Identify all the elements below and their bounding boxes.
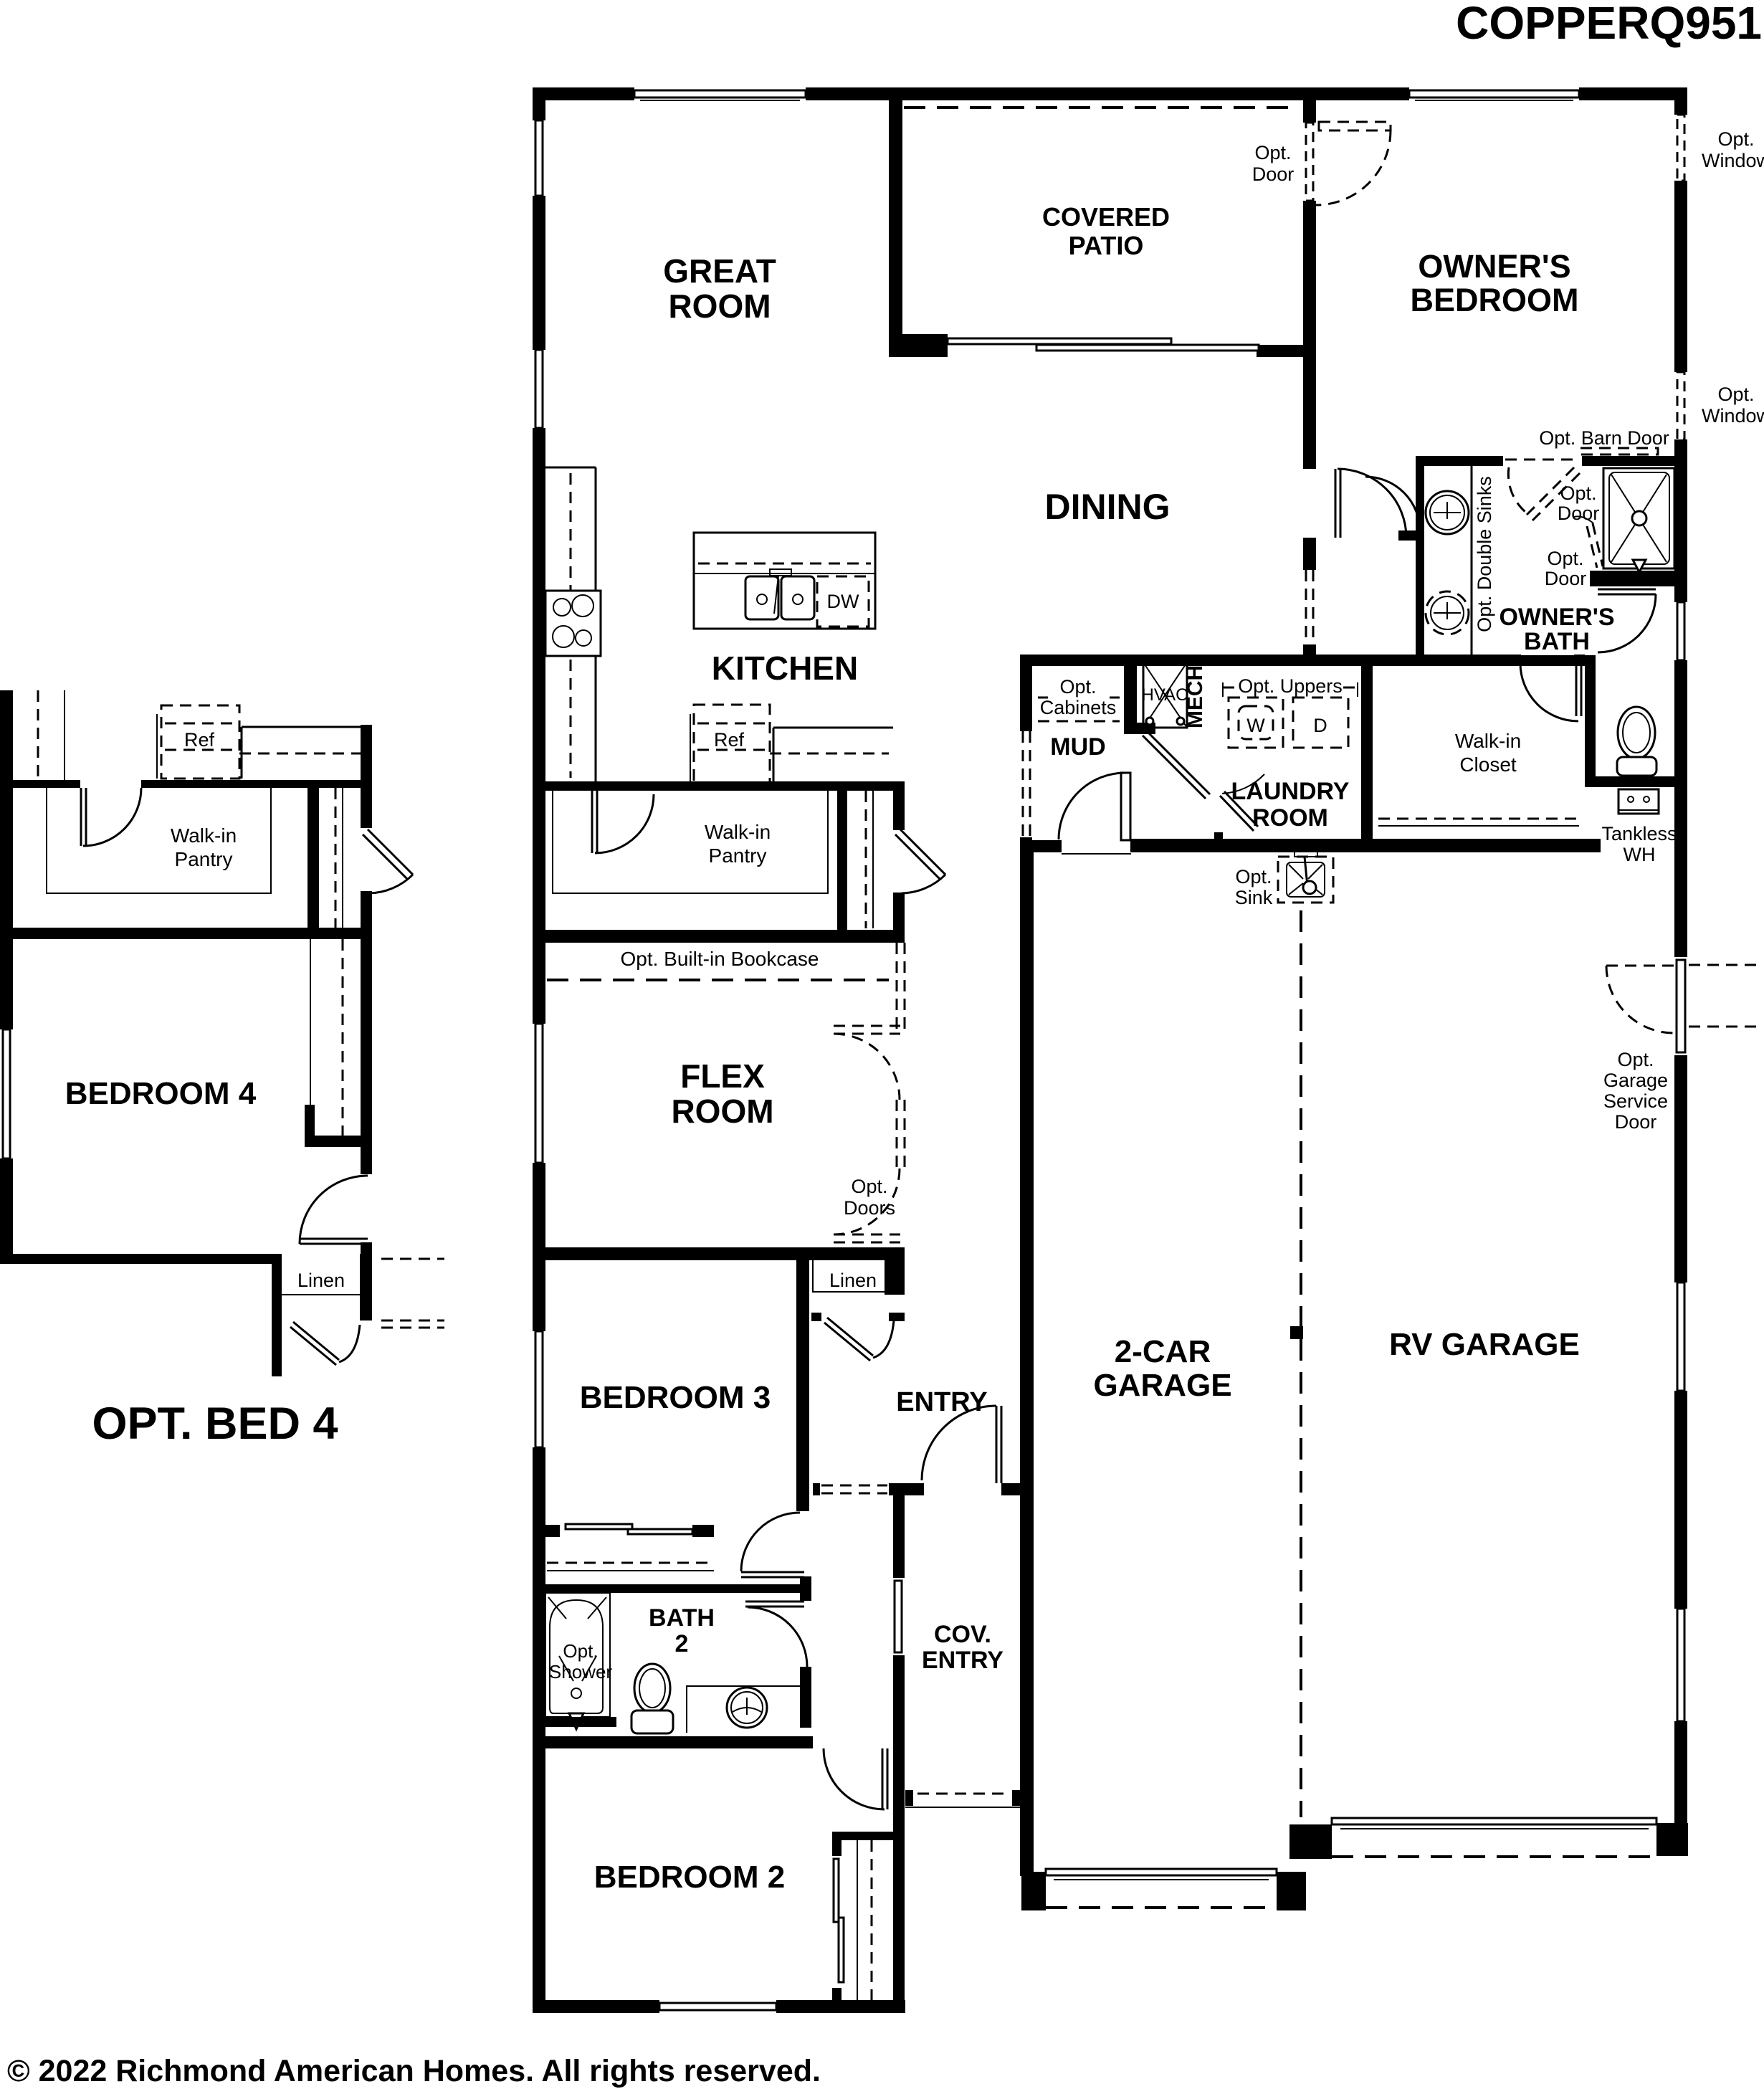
svg-text:WH: WH xyxy=(1624,844,1656,865)
svg-text:DINING: DINING xyxy=(1045,487,1171,527)
svg-text:Doors: Doors xyxy=(844,1197,895,1219)
svg-text:Opt.: Opt. xyxy=(1560,482,1596,504)
svg-text:BEDROOM 3: BEDROOM 3 xyxy=(580,1380,771,1415)
svg-text:D: D xyxy=(1313,715,1327,736)
svg-text:Opt.: Opt. xyxy=(1717,384,1754,405)
svg-text:RV GARAGE: RV GARAGE xyxy=(1389,1327,1580,1362)
svg-text:Door: Door xyxy=(1615,1111,1657,1133)
svg-text:BEDROOM 4: BEDROOM 4 xyxy=(65,1076,257,1111)
svg-text:Door: Door xyxy=(1558,503,1600,524)
svg-text:OWNER'S: OWNER'S xyxy=(1499,604,1614,631)
svg-text:BATH: BATH xyxy=(1524,628,1590,655)
svg-text:2-CAR: 2-CAR xyxy=(1115,1334,1211,1369)
svg-text:OPT. BED 4: OPT. BED 4 xyxy=(92,1399,338,1449)
svg-text:DW: DW xyxy=(827,591,859,612)
svg-text:Sink: Sink xyxy=(1235,887,1273,908)
svg-text:2: 2 xyxy=(675,1630,689,1657)
svg-text:Opt.: Opt. xyxy=(1617,1049,1654,1070)
svg-text:Opt. Uppers: Opt. Uppers xyxy=(1238,675,1343,697)
svg-text:Door: Door xyxy=(1252,163,1295,185)
svg-text:Opt.: Opt. xyxy=(1717,128,1754,150)
svg-text:BATH: BATH xyxy=(649,1604,715,1632)
svg-text:Door: Door xyxy=(1545,568,1587,589)
svg-text:Ref: Ref xyxy=(184,729,215,751)
svg-text:FLEX: FLEX xyxy=(680,1057,765,1095)
svg-text:ENTRY: ENTRY xyxy=(896,1387,987,1417)
svg-text:Opt.: Opt. xyxy=(1254,142,1291,163)
svg-text:Walk-in: Walk-in xyxy=(1455,730,1521,752)
svg-text:LAUNDRY: LAUNDRY xyxy=(1231,778,1350,805)
svg-text:OWNER'S: OWNER'S xyxy=(1418,248,1570,285)
svg-text:Walk-in: Walk-in xyxy=(705,821,771,843)
svg-text:ROOM: ROOM xyxy=(671,1093,773,1130)
svg-text:Opt.: Opt. xyxy=(563,1640,598,1662)
svg-text:W: W xyxy=(1246,715,1265,736)
svg-text:Walk-in: Walk-in xyxy=(171,824,237,847)
svg-text:HVAC: HVAC xyxy=(1142,685,1188,705)
svg-text:COVERED: COVERED xyxy=(1042,202,1170,232)
svg-text:Closet: Closet xyxy=(1459,753,1517,776)
svg-text:KITCHEN: KITCHEN xyxy=(712,649,858,687)
svg-text:MECH: MECH xyxy=(1183,665,1207,728)
svg-text:Linen: Linen xyxy=(829,1270,877,1291)
svg-text:Tankless: Tankless xyxy=(1601,823,1677,844)
svg-text:© 2022 Richmond American Homes: © 2022 Richmond American Homes. All righ… xyxy=(7,2054,821,2088)
svg-text:Pantry: Pantry xyxy=(709,844,767,867)
svg-text:ROOM: ROOM xyxy=(1252,804,1328,832)
svg-text:GREAT: GREAT xyxy=(663,252,776,290)
svg-text:Service: Service xyxy=(1603,1090,1668,1112)
svg-text:Opt.: Opt. xyxy=(1235,866,1272,887)
svg-text:Window: Window xyxy=(1702,150,1764,171)
svg-text:MUD: MUD xyxy=(1050,733,1105,761)
svg-text:Opt.: Opt. xyxy=(1059,676,1096,698)
svg-text:Opt. Double Sinks: Opt. Double Sinks xyxy=(1474,476,1495,632)
svg-text:Window: Window xyxy=(1702,405,1764,427)
svg-text:Ref: Ref xyxy=(714,729,745,751)
svg-text:Opt. Built-in Bookcase: Opt. Built-in Bookcase xyxy=(620,948,819,970)
svg-text:BEDROOM: BEDROOM xyxy=(1411,282,1579,318)
svg-text:COPPERQ951: COPPERQ951 xyxy=(1456,0,1762,49)
svg-text:Cabinets: Cabinets xyxy=(1040,697,1117,718)
svg-text:Linen: Linen xyxy=(297,1270,345,1291)
svg-text:Opt.: Opt. xyxy=(1547,548,1583,569)
svg-text:Opt.: Opt. xyxy=(851,1176,887,1197)
svg-text:Shower: Shower xyxy=(549,1661,612,1683)
svg-text:GARAGE: GARAGE xyxy=(1093,1368,1231,1403)
svg-text:COV.: COV. xyxy=(934,1621,991,1648)
svg-text:ROOM: ROOM xyxy=(668,287,771,325)
svg-text:Opt. Barn Door: Opt. Barn Door xyxy=(1539,427,1669,449)
svg-text:Pantry: Pantry xyxy=(175,848,233,870)
svg-text:Garage: Garage xyxy=(1603,1070,1668,1091)
svg-text:BEDROOM 2: BEDROOM 2 xyxy=(594,1860,785,1895)
svg-text:ENTRY: ENTRY xyxy=(922,1647,1003,1674)
svg-text:PATIO: PATIO xyxy=(1069,231,1144,260)
